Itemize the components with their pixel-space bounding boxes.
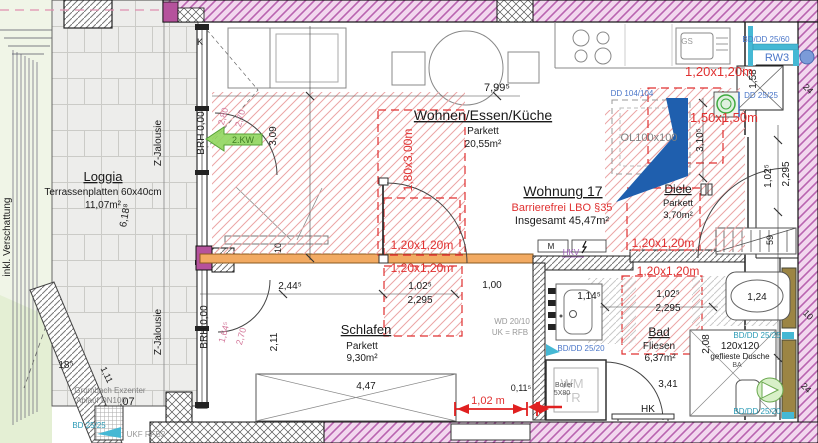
zone-120-beam-top: 1,20x1,20m (391, 238, 454, 252)
label-brh-bottom: BRH 0,00 (199, 305, 210, 349)
dim-2445: 2,44⁵ (278, 281, 302, 292)
radiator (612, 414, 674, 421)
dim-10-beam: 10 (273, 243, 283, 253)
label-bddd2520-bottom: BD/DD 25/20 (733, 407, 781, 416)
dim-1645: 1,64⁵ (217, 320, 232, 343)
label-ukfrfb2: UKF RFB2 (127, 430, 166, 439)
floor-plan-drawing: LoggiaTerrassenplatten 60x40cm11,07m²Woh… (0, 0, 818, 443)
dim-208: 2,08 (701, 334, 712, 354)
label-bd2525-loggia: BD 25/25 (72, 421, 106, 430)
dim-59: 59 (765, 235, 775, 245)
room-schlafen-area: 9,30m² (346, 353, 378, 364)
label-grumbach: Grumbach Exzenter (74, 386, 145, 395)
room-loggia-area: 11,07m² (85, 200, 122, 211)
sink-fitting (748, 26, 753, 66)
label-bddd2520-bad: BD/DD 25/20 (557, 344, 605, 353)
zone-120-diele: 1,20x1,20m (632, 236, 695, 250)
dim-341: 3,41 (658, 379, 678, 390)
dim-0115: 0,11⁵ (511, 383, 532, 393)
label-5x80: 5X80 (554, 390, 570, 397)
label-ol100: OL100x100 (621, 132, 678, 144)
room-loggia-title: Loggia (83, 169, 123, 184)
dim-124: 1,24 (747, 292, 767, 303)
apartment-total: Insgesamt 45,47m² (515, 215, 609, 227)
label-hk: HK (641, 404, 655, 415)
label-m: M (548, 242, 555, 251)
cooktop-burner (573, 30, 589, 46)
zone-120-bad: 1,20x1,20m (637, 264, 700, 278)
dim-799: 7,99⁵ (484, 82, 510, 94)
zone-180x300: 1,80x3,00m (401, 129, 415, 192)
dim-3105: 3,10⁵ (695, 128, 706, 152)
room-diele-floor: Parkett (663, 198, 693, 209)
label-ukrfb: UK = RFB (492, 328, 528, 337)
label-verschattung: inkl. Verschattung (2, 198, 13, 277)
dim-447: 4,47 (356, 381, 376, 392)
label-wd2010: WD 20/10 (494, 317, 530, 326)
dim-102m-red: 1,02 m (471, 395, 505, 407)
label-dusche: geflieste Dusche (710, 352, 770, 361)
dim-1025-bad: 1,02⁵ (656, 289, 680, 300)
room-schlafen-title: Schlafen (341, 322, 392, 337)
room-diele-area: 3,70m² (663, 210, 693, 221)
room-bad-title: Bad (648, 325, 669, 339)
zone-120-kitchen: 1,20x1,20m (685, 64, 753, 79)
chair (508, 52, 539, 83)
label-zjalousie-bottom: Z-Jalousie (153, 309, 164, 356)
floor-plan: LoggiaTerrassenplatten 60x40cm11,07m²Woh… (0, 0, 818, 443)
room-bad-area: 6,37m² (644, 353, 676, 364)
chair (392, 52, 425, 85)
label-brh-top: BRH 0,00 (196, 111, 207, 155)
room-bad-floor: Fliesen (643, 341, 675, 352)
label-rw3: RW3 (765, 52, 789, 64)
cooktop-burner (595, 48, 611, 64)
installation-shaft (782, 340, 796, 418)
label-ba: BA (732, 362, 742, 369)
dim-1025-right: 1,02⁵ (763, 164, 774, 188)
label-2kw: 2.KW (232, 135, 255, 145)
room-loggia-floor: Terrassenplatten 60x40cm (44, 187, 161, 198)
room-wohnen-title: Wohnen/Essen/Küche (414, 107, 552, 123)
label-k: K (197, 37, 203, 47)
label-dusche-size: 120x120 (721, 341, 760, 352)
label-dd104: DD 104/104 (611, 89, 654, 98)
column-top-left (64, 0, 112, 28)
apartment-title: Wohnung 17 (523, 183, 602, 199)
room-wohnen-floor: Parkett (467, 126, 499, 137)
dim-2295-right: 2,295 (781, 161, 792, 186)
label-zjalousie-top: Z-Jalousie (153, 120, 164, 167)
room-schlafen-floor: Parkett (346, 341, 378, 352)
label-dd2525: DD 25/25 (744, 91, 778, 100)
label-boiler: Boiler (555, 382, 574, 389)
dim-1025-schlafen: 1,02⁵ (408, 281, 432, 292)
dim-185: 18⁵ (58, 360, 73, 371)
wardrobe (228, 28, 346, 88)
zone-120-beam-bottom: 1,20x1,20m (391, 261, 454, 275)
room-diele-title: Diele (664, 182, 692, 196)
lintel-beam (200, 254, 533, 263)
label-ablauf: Ablauf DN100 (76, 396, 126, 405)
room-wohnen-area: 20,55m² (465, 139, 502, 150)
apartment-note: Barrierefrei LBO §35 (512, 202, 613, 214)
dim-1145: 1,14⁵ (577, 291, 601, 302)
dim-100: 1,00 (482, 280, 502, 291)
dim-2295-bad: 2,295 (655, 303, 680, 314)
dim-2295-schlafen: 2,295 (407, 295, 432, 306)
kitchen (555, 22, 753, 68)
dim-309: 3,09 (268, 126, 279, 146)
label-bddd2560: BD/DD 25/60 (742, 35, 790, 44)
label-hkv: HKV (563, 248, 580, 257)
cooktop-burner (597, 32, 609, 44)
dim-211: 2,11 (269, 332, 280, 351)
cooktop-burner (575, 50, 587, 62)
label-gs: GS (681, 37, 693, 46)
label-bddd2525-right: BD/DD 25/25 (733, 331, 781, 340)
zone-150: 1,50x1,50m (690, 110, 758, 125)
